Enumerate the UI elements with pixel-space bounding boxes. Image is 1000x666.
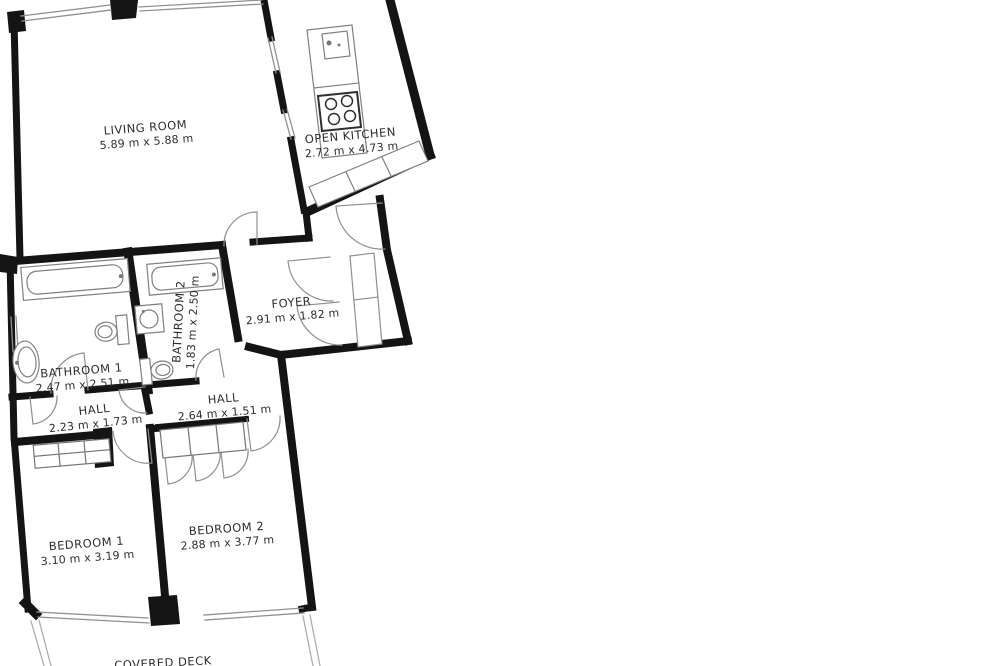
door-bedroom2 — [247, 416, 280, 451]
window-kitchen-2 — [283, 109, 295, 139]
window-top-right — [139, 0, 263, 11]
door-bedroom1 — [113, 429, 152, 463]
window-living-top — [21, 5, 111, 21]
door-bed2-closet-2 — [193, 451, 220, 481]
floor-plan-canvas: LIVING ROOM 5.89 m x 5.88 m OPEN KITCHEN… — [0, 0, 1000, 666]
door-bed2-closet-3 — [221, 449, 248, 478]
window-bedroom1 — [37, 612, 149, 623]
door-bed2-closet-1 — [165, 454, 192, 484]
kitchen-sink-icon — [322, 31, 350, 59]
sink-icon — [135, 304, 164, 334]
window-bedroom2 — [204, 608, 304, 620]
floor-plan-drawing — [0, 0, 1000, 666]
stove-icon — [318, 92, 361, 131]
foyer-closet — [350, 253, 382, 347]
toilet-icon — [94, 315, 129, 347]
bathtub-icon — [21, 259, 130, 301]
window-kitchen-1 — [268, 37, 280, 73]
kitchen-fixtures — [307, 25, 428, 207]
door-bathroom2 — [196, 349, 224, 380]
room-label-bathroom-2: BATHROOM 2 1.83 m x 2.50 m — [169, 274, 203, 369]
